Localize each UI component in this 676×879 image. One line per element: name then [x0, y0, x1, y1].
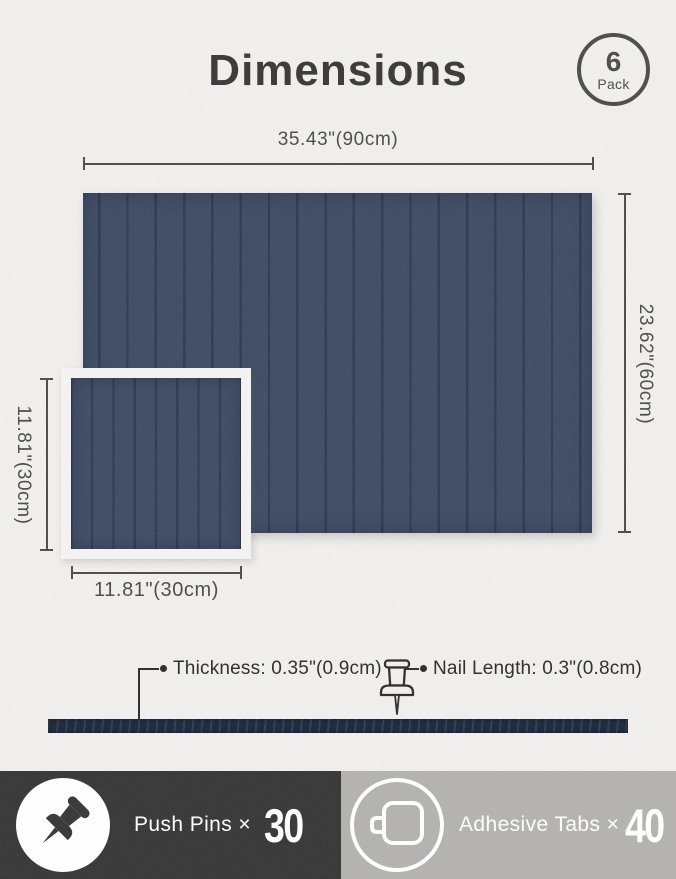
large-panel-height-label: 23.62"(60cm) [634, 304, 656, 425]
push-pins-section: Push Pins × 30 [0, 771, 341, 879]
small-panel-height-label: 11.81"(30cm) [12, 405, 34, 524]
adhesive-tabs-section: Adhesive Tabs × 40 [341, 771, 676, 879]
strip-texture [48, 719, 628, 733]
nail-length-label: Nail Length: 0.3"(0.8cm) [433, 658, 642, 680]
tick [40, 549, 53, 551]
small-panel-frame [61, 368, 251, 559]
small-panel-width-label: 11.81"(30cm) [71, 579, 242, 602]
dimensions-infographic: Dimensions 6 Pack 35.43"(90cm) 23.62"(60… [0, 0, 676, 879]
adhesive-tab-icon [368, 798, 426, 852]
large-panel-width-dimension-line [83, 163, 594, 165]
thickness-leader-dot [160, 665, 167, 672]
tick [618, 193, 631, 195]
push-pins-count: 30 [264, 802, 303, 849]
panel-texture [71, 378, 241, 549]
push-pin-icon [32, 794, 94, 856]
small-panel-height-dimension-line [46, 378, 48, 551]
tick [240, 566, 242, 579]
small-panel-width-dimension-line [71, 572, 242, 574]
pack-count: 6 [606, 48, 622, 76]
page-title: Dimensions [0, 46, 676, 96]
adhesive-tabs-count: 40 [625, 802, 664, 849]
pack-count-badge: 6 Pack [577, 33, 650, 106]
large-panel-width-label: 35.43"(90cm) [0, 129, 676, 151]
tick [83, 157, 85, 170]
adhesive-tabs-label: Adhesive Tabs × [459, 813, 619, 837]
panel-edge-strip [48, 719, 628, 733]
nail-leader-dot [420, 665, 427, 672]
thickness-leader-line [138, 669, 140, 719]
tick [71, 566, 73, 579]
tick [618, 531, 631, 533]
adhesive-tab-icon-circle [350, 778, 444, 872]
thickness-leader-line [138, 668, 159, 670]
tick [592, 157, 594, 170]
small-acoustic-panel [71, 378, 241, 549]
tick [40, 378, 53, 380]
nail-leader-line [406, 668, 419, 670]
large-panel-height-dimension-line [624, 193, 626, 533]
pack-label: Pack [597, 76, 629, 92]
push-pin-icon-circle [16, 778, 110, 872]
thickness-label: Thickness: 0.35"(0.9cm) [173, 658, 382, 680]
push-pins-label: Push Pins × [134, 813, 251, 837]
